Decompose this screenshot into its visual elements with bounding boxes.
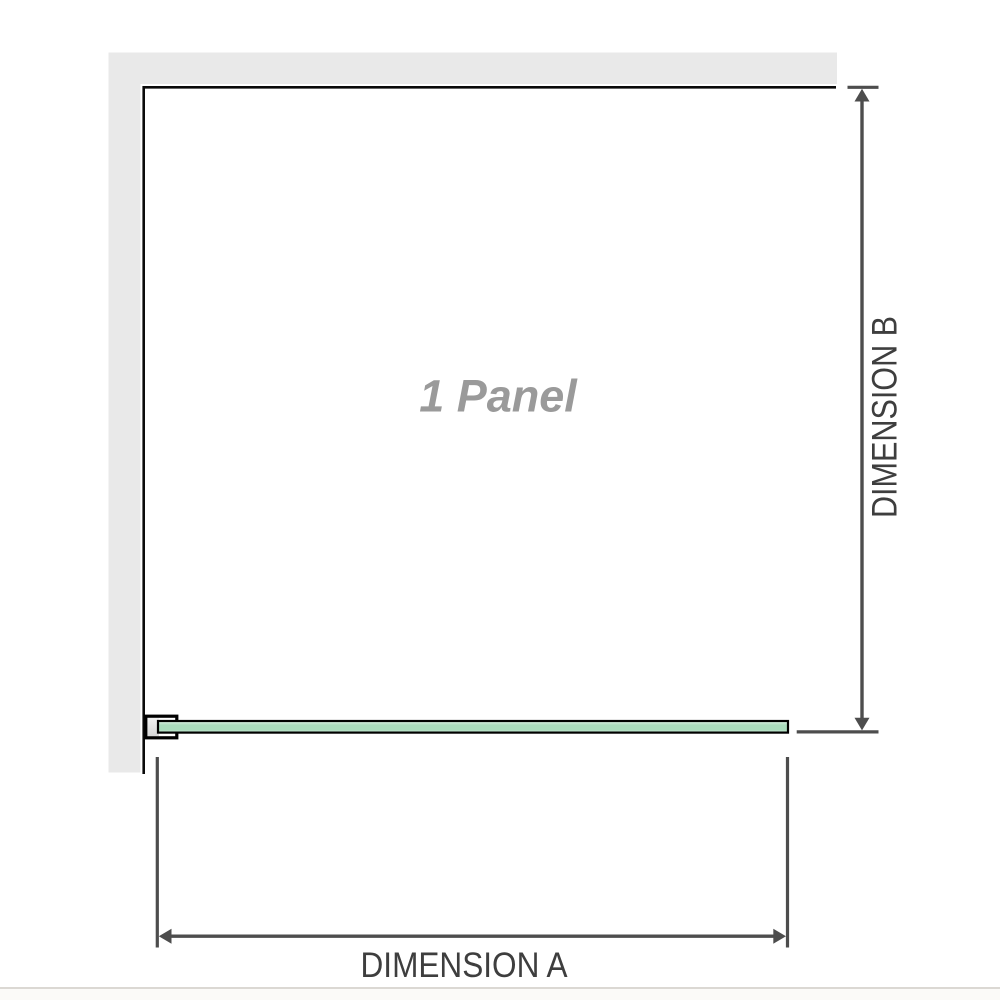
svg-text:1 Panel: 1 Panel: [419, 371, 578, 422]
svg-text:DIMENSION B: DIMENSION B: [865, 316, 904, 518]
svg-text:DIMENSION A: DIMENSION A: [361, 946, 569, 985]
